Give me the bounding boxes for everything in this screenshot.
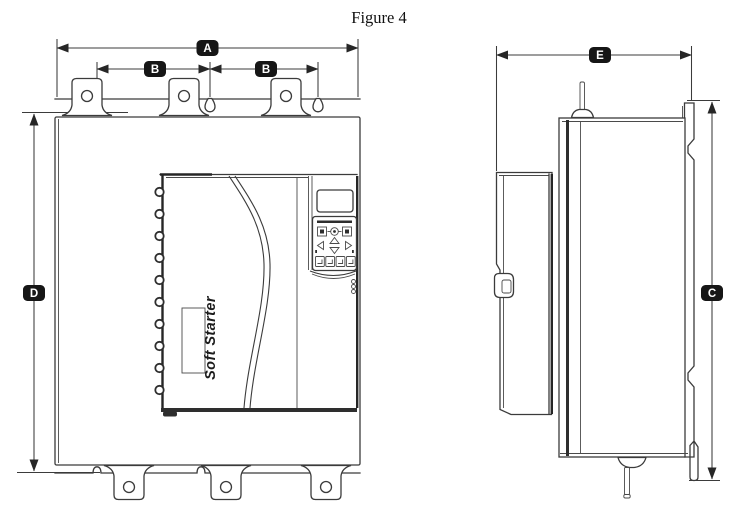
back-plate-profile [685,103,699,481]
run-indicator-dot [320,230,324,234]
dim-b-right-label: B [262,64,270,76]
function-button [336,257,345,267]
function-button [316,257,325,267]
dim-d-label: D [30,288,38,300]
dim-a-label: A [203,43,211,55]
door-latch-slot [502,280,511,293]
hinge-knuckle [155,188,163,196]
hinge-knuckle [155,298,163,306]
mount-hole [124,482,135,493]
mount-hole [281,91,292,102]
product-brand-text: Soft Starter [203,295,219,380]
top-mounting-tabs [62,79,323,116]
mount-hole [179,91,190,102]
enclosure-body [55,117,360,465]
side-enclosure-body [559,118,685,457]
side-top-screw [572,82,594,118]
bottom-screw-tip [624,495,630,499]
display-slot [317,221,352,224]
top-screw-shaft [580,82,585,110]
indicator-icon-row [318,227,352,236]
power-indicator-dot [333,230,336,233]
rating-label-area [182,308,205,373]
function-button [326,257,335,267]
side-bottom-screw [618,458,646,499]
hinge-knuckle [155,254,163,262]
keyhole-slot [205,99,215,112]
mount-hole [82,91,93,102]
side-door [495,173,553,415]
display-screen [317,190,353,212]
mount-hole [221,482,232,493]
mount-hole [321,482,332,493]
bottom-screw-boss [618,458,646,468]
led-indicator [352,280,356,284]
front-view: Soft Starter [17,39,360,500]
cover-bottom-edge [161,408,357,412]
bottom-mounting-tabs [104,466,351,500]
soft-starter-dimension-drawing: Figure 4 [0,0,750,505]
hinge-knuckle [155,210,163,218]
keyhole-slot [313,99,323,112]
hinge-knuckle [155,232,163,240]
hinge-knuckle [155,342,163,350]
hinge-knuckle [155,276,163,284]
technical-drawing-page: Figure 4 [0,0,750,505]
bottom-screw-shaft [625,468,630,495]
front-chassis [55,99,360,473]
side-body [559,118,688,457]
cover-latch-bottom [163,412,177,417]
key-tick-mark [315,250,317,253]
hinge-knuckle [155,364,163,372]
key-tick-mark [352,250,354,253]
function-button [346,257,355,267]
led-indicator [352,285,356,289]
side-view [495,46,721,498]
dim-c-label: C [708,288,716,300]
fault-indicator-dot [345,230,349,234]
dim-b-left-label: B [151,64,159,76]
led-indicator [352,290,356,294]
dim-e-label: E [596,50,604,62]
side-led-indicators [352,280,356,294]
figure-title: Figure 4 [351,8,406,27]
top-screw-boss [572,110,594,118]
hinge-knuckle [155,386,163,394]
hinge-knuckle [155,320,163,328]
